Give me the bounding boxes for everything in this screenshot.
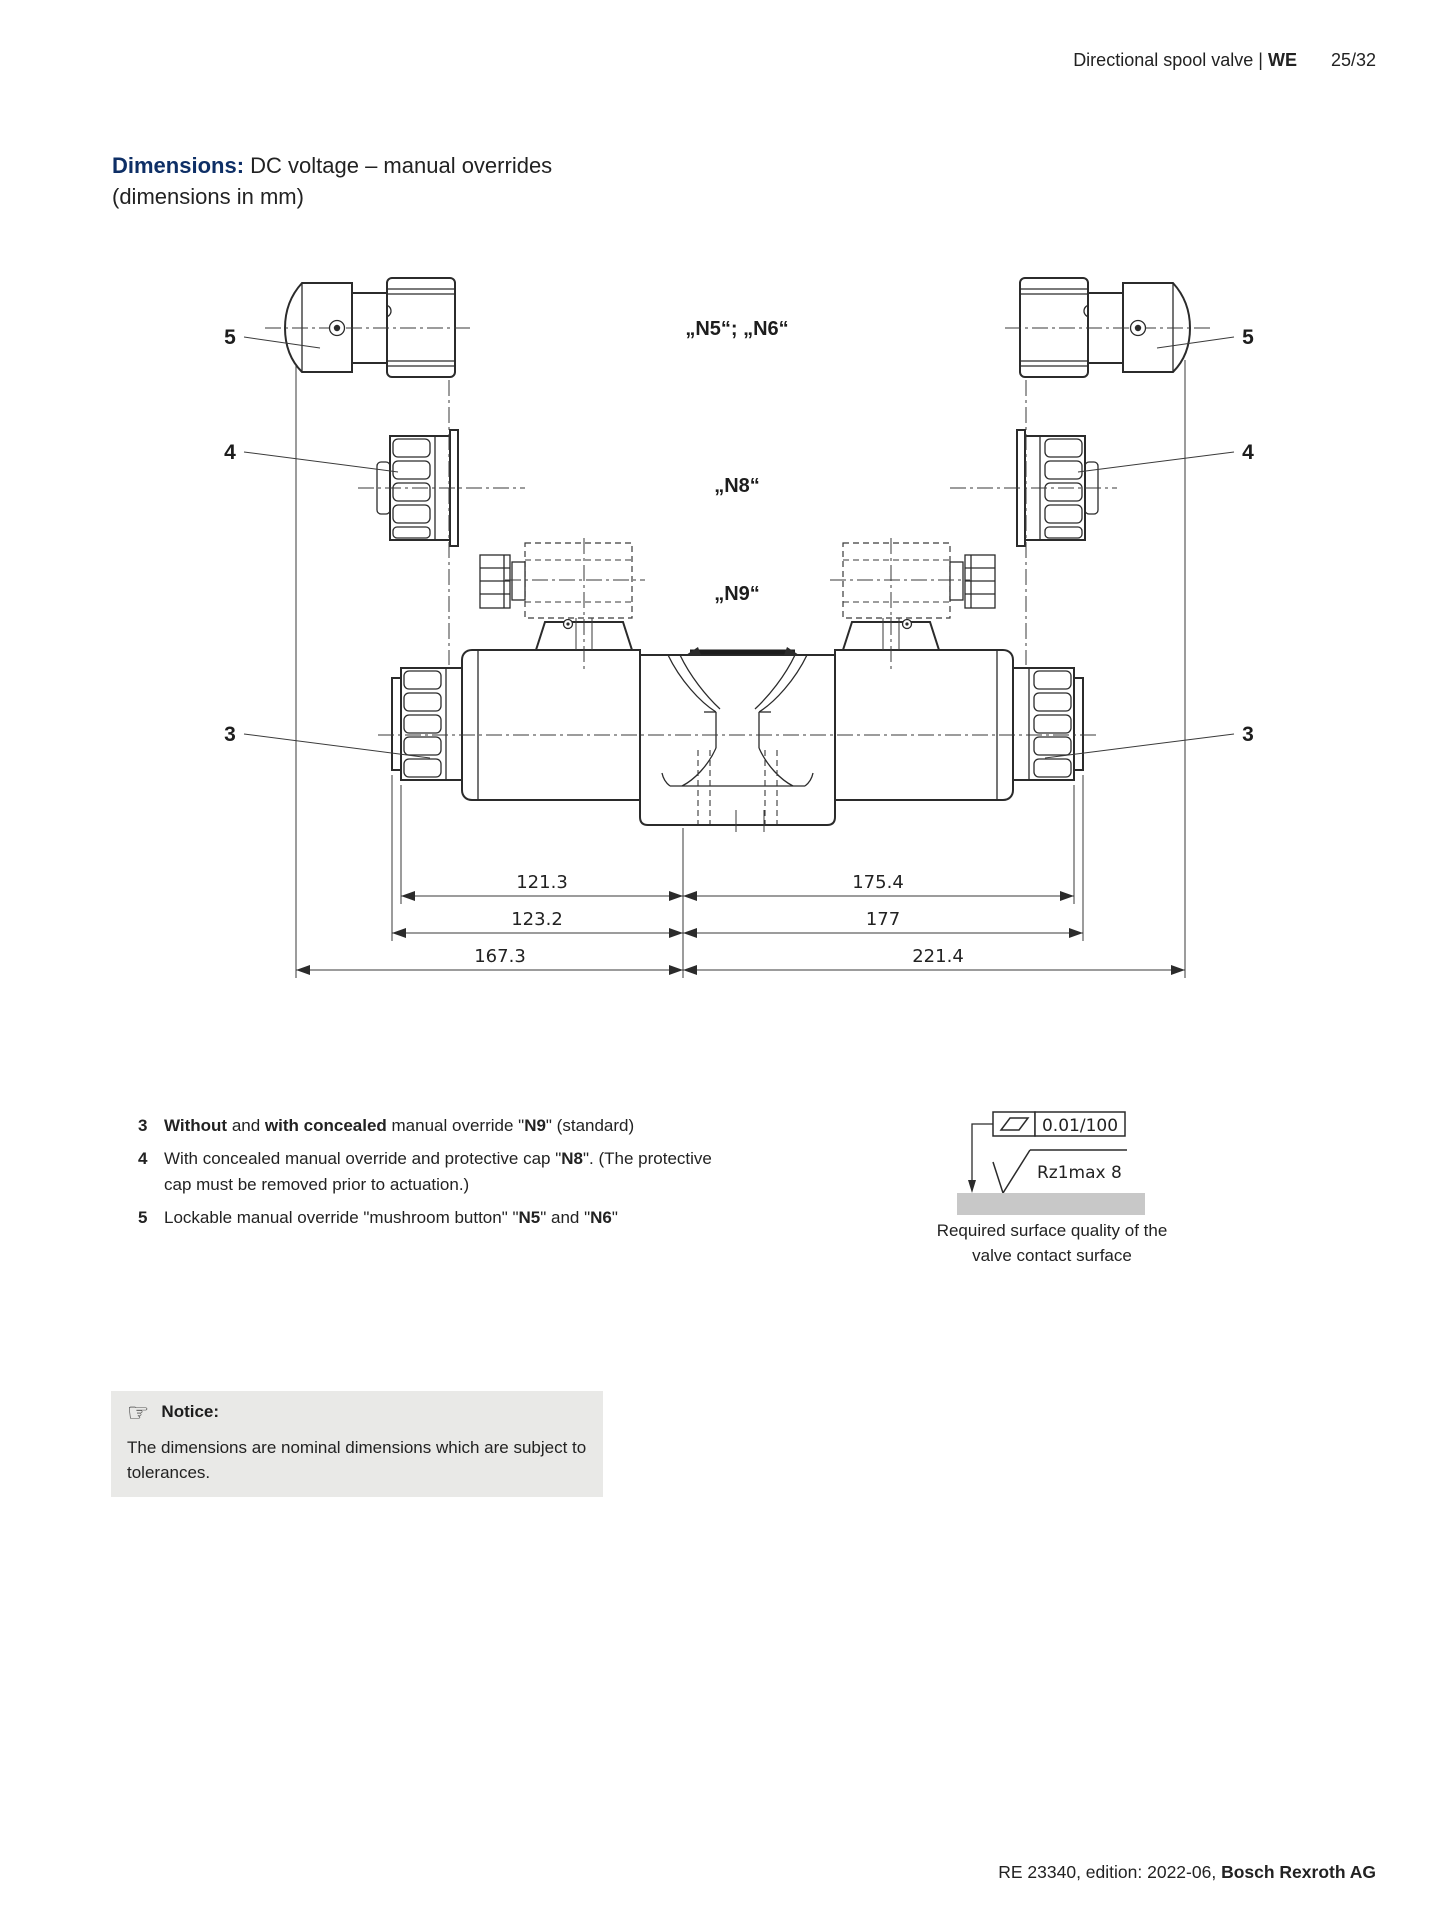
dimension-row-2: 123.2 177 xyxy=(392,909,1083,938)
surface-quality-symbol: 0.01/100 Rz1max 8 xyxy=(940,1100,1260,1230)
item-label-5-left: 5 xyxy=(224,326,236,349)
legend-item-4: 4 With concealed manual override and pro… xyxy=(112,1146,724,1198)
valve-dimension-drawing: 5 5 4 4 3 3 „N5“; „N6“ „N8“ „N9“ 121.3 1… xyxy=(0,210,1440,1020)
roughness-value: Rz1max 8 xyxy=(1037,1163,1122,1183)
title-line1: Dimensions: DC voltage – manual override… xyxy=(112,150,552,181)
notice-header: ☞Notice: xyxy=(127,1401,219,1425)
dimension-row-1: 121.3 175.4 xyxy=(401,872,1074,901)
page-header: Directional spool valve | WE25/32 xyxy=(1073,50,1376,71)
item-label-3-right: 3 xyxy=(1242,723,1254,746)
roughness-symbol: Rz1max 8 xyxy=(993,1150,1127,1193)
dimension-row-3: 167.3 221.4 xyxy=(296,946,1185,975)
section-title: Dimensions: DC voltage – manual override… xyxy=(112,150,552,212)
item-label-5-right: 5 xyxy=(1242,326,1254,349)
variant-label-n5-n6: „N5“; „N6“ xyxy=(685,318,788,340)
title-lead: Dimensions: xyxy=(112,153,244,178)
dim-177: 177 xyxy=(866,909,900,930)
title-line2: (dimensions in mm) xyxy=(112,181,552,212)
variant-label-n8: „N8“ xyxy=(714,475,760,497)
notice-title: Notice: xyxy=(161,1402,219,1421)
legend-text-4: With concealed manual override and prote… xyxy=(164,1146,724,1198)
lock-pin-right xyxy=(1131,321,1146,336)
pointing-hand-icon: ☞ xyxy=(127,1399,149,1427)
legend-item-3: 3 Without and with concealed manual over… xyxy=(112,1113,724,1139)
datasheet-page: Directional spool valve | WE25/32 Dimens… xyxy=(0,0,1440,1920)
dim-121-3: 121.3 xyxy=(516,872,568,893)
dim-221-4: 221.4 xyxy=(912,946,964,967)
header-product: Directional spool valve | xyxy=(1073,50,1268,70)
dim-167-3: 167.3 xyxy=(474,946,526,967)
surface-caption-line2: valve contact surface xyxy=(926,1243,1178,1268)
page-number: 25/32 xyxy=(1331,50,1376,71)
surface-caption: Required surface quality of the valve co… xyxy=(926,1218,1178,1268)
legend-num-5: 5 xyxy=(138,1205,164,1231)
variant-label-n9: „N9“ xyxy=(714,583,760,605)
notice-body: The dimensions are nominal dimensions wh… xyxy=(127,1435,587,1485)
legend-text-5: Lockable manual override "mushroom butto… xyxy=(164,1205,618,1231)
footer-doc-info: RE 23340, edition: 2022-06, xyxy=(998,1862,1221,1882)
legend-text-3: Without and with concealed manual overri… xyxy=(164,1113,634,1139)
item-label-3-left: 3 xyxy=(224,723,236,746)
lock-pin-left xyxy=(330,321,345,336)
surface-caption-line1: Required surface quality of the xyxy=(926,1218,1178,1243)
legend: 3 Without and with concealed manual over… xyxy=(112,1113,724,1238)
page-footer: RE 23340, edition: 2022-06, Bosch Rexrot… xyxy=(998,1862,1376,1883)
solenoid-nut-left xyxy=(392,668,462,780)
solenoid-nut-right xyxy=(1013,668,1083,780)
valve-body xyxy=(462,622,1013,832)
contact-surface-bar xyxy=(957,1193,1145,1215)
legend-num-3: 3 xyxy=(138,1113,164,1139)
header-series: WE xyxy=(1268,50,1297,70)
item-label-4-right: 4 xyxy=(1242,441,1254,464)
flatness-value: 0.01/100 xyxy=(1042,1116,1118,1136)
title-rest: DC voltage – manual overrides xyxy=(244,153,552,178)
notice-box: ☞Notice: The dimensions are nominal dime… xyxy=(111,1391,603,1497)
legend-item-5: 5 Lockable manual override "mushroom but… xyxy=(112,1205,724,1231)
dim-175-4: 175.4 xyxy=(852,872,904,893)
legend-num-4: 4 xyxy=(138,1146,164,1198)
item-label-4-left: 4 xyxy=(224,441,236,464)
footer-company: Bosch Rexroth AG xyxy=(1221,1862,1376,1882)
dim-123-2: 123.2 xyxy=(511,909,563,930)
